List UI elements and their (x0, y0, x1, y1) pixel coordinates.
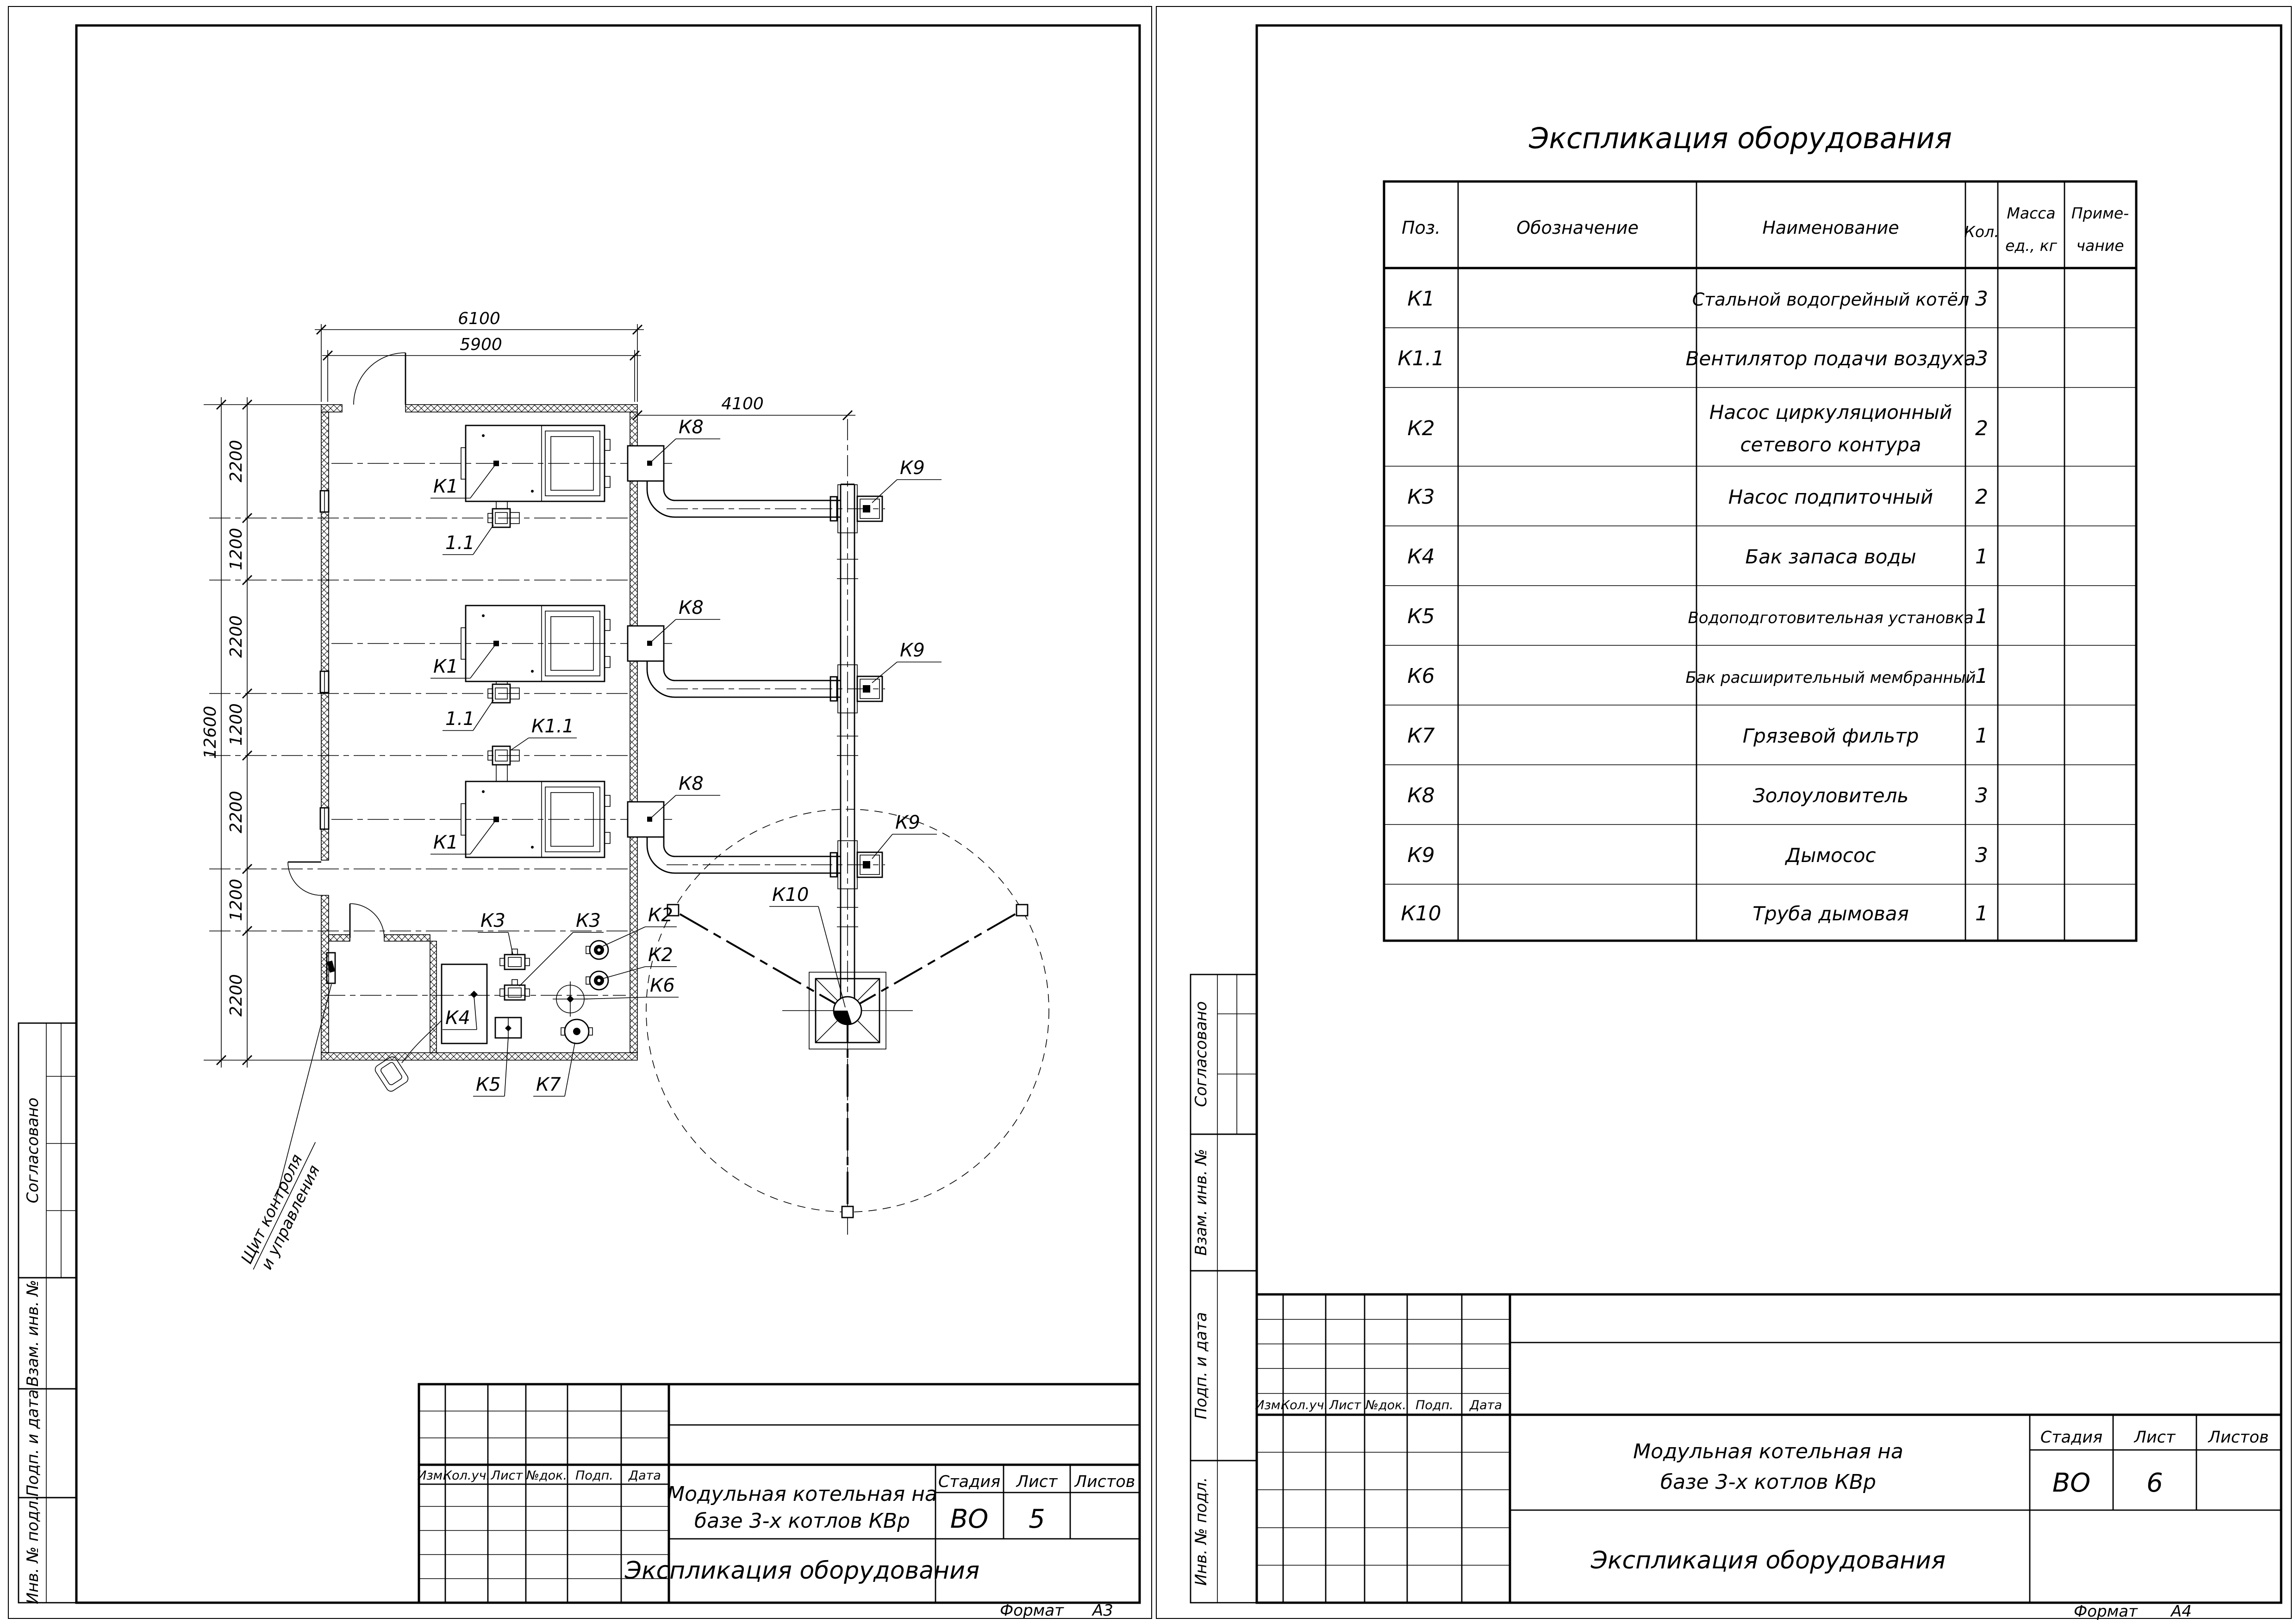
format-value: А4 (2170, 1602, 2192, 1621)
stamp-inv: Инв. № подл. (24, 1496, 42, 1605)
doc-name: Экспликация оборудования (1590, 1547, 1946, 1574)
tbl-rev-koluch: Кол.уч. (443, 1468, 490, 1483)
format-note-right: Формат А4 (2074, 1602, 2192, 1621)
format-value: А3 (1091, 1601, 1113, 1620)
format-note-left: Формат А3 (1000, 1601, 1113, 1620)
cell-name: Бак расширительный мембранный (1686, 668, 1976, 687)
cell-name2: сетевого контура (1740, 433, 1921, 456)
cell-qty: 1 (1975, 545, 1988, 568)
sheets-header: Листов (2208, 1428, 2269, 1447)
label-k8-1: К8 (679, 417, 704, 438)
cell-qty: 1 (1975, 605, 1988, 628)
label-fan-2: 1.1 (445, 708, 475, 730)
table-title: Экспликация оборудования (1528, 121, 1952, 155)
cell-pos: К4 (1407, 545, 1434, 568)
tbl-rev-ndok: №док. (525, 1468, 567, 1483)
stage-header: Стадия (938, 1473, 1000, 1491)
sheet-value: 5 (1029, 1504, 1045, 1534)
drawing-canvas: Согласовано Взам. инв. № Подп. и дата Ин… (0, 0, 2295, 1624)
cell-pos: К8 (1407, 784, 1434, 807)
tbl-rev-podp: Подп. (1416, 1398, 1453, 1412)
cell-name: Дымосос (1784, 844, 1876, 867)
col-code: Обозначение (1516, 218, 1639, 238)
cell-name: Водоподготовительная установка (1688, 609, 1973, 627)
dim-6100: 6100 (458, 309, 500, 328)
label-fan-3: К1.1 (531, 716, 574, 737)
dim-12600: 12600 (201, 706, 220, 759)
label-k1-2: К1 (433, 656, 458, 677)
cell-qty: 3 (1975, 347, 1988, 370)
label-k8-2: К8 (679, 597, 704, 618)
stamp-inv: Инв. № подл. (1192, 1477, 1210, 1586)
stage-value: ВО (2052, 1468, 2091, 1498)
label-k3-2: К3 (576, 910, 601, 931)
label-k9-1: К9 (900, 457, 925, 479)
label-k7: К7 (536, 1074, 561, 1095)
cell-name: Труба дымовая (1752, 902, 1909, 925)
label-k4: К4 (445, 1007, 470, 1029)
label-k3-1: К3 (480, 910, 505, 931)
cell-pos: К7 (1407, 724, 1434, 748)
col-qty: Кол. (1964, 223, 1999, 241)
cell-name: Стальной водогрейный котёл (1692, 289, 1969, 310)
dim-5900: 5900 (460, 335, 502, 354)
project-title-1: Модульная котельная на (1633, 1440, 1903, 1463)
tbl-rev-ndok: №док. (1365, 1398, 1406, 1412)
cell-qty: 2 (1975, 417, 1988, 440)
label-k10: К10 (772, 884, 809, 906)
tbl-rev-izm: Изм. (417, 1468, 447, 1483)
cell-qty: 1 (1975, 664, 1988, 688)
tbl-rev-list: Лист (1329, 1398, 1362, 1412)
format-label: Формат (1000, 1601, 1064, 1620)
cell-qty: 2 (1975, 485, 1988, 509)
cell-name: Вентилятор подачи воздуха (1686, 347, 1976, 370)
project-title-2: базе 3-х котлов КВр (694, 1509, 910, 1533)
stamp-podp: Подп. и дата (1192, 1312, 1210, 1419)
cell-name: Бак запаса воды (1745, 545, 1916, 568)
stamp-zam: Взам. инв. № (24, 1280, 42, 1387)
tbl-rev-koluch: Кол.уч. (1281, 1398, 1328, 1412)
label-k9-2: К9 (900, 640, 925, 661)
cell-qty: 1 (1975, 902, 1988, 925)
doc-name: Экспликация оборудования (624, 1557, 979, 1585)
label-fan-1: 1.1 (445, 532, 475, 554)
cell-pos: К6 (1407, 664, 1434, 688)
format-label: Формат (2074, 1602, 2138, 1621)
tbl-rev-izm: Изм. (1255, 1398, 1285, 1412)
label-k2-1: К2 (648, 905, 673, 926)
cell-qty: 3 (1975, 287, 1988, 311)
cell-name: Грязевой фильтр (1743, 725, 1919, 747)
label-k8-3: К8 (679, 773, 704, 794)
stamp-approved: Согласовано (1192, 1001, 1210, 1107)
label-k1-3: К1 (433, 832, 458, 853)
label-k5: К5 (476, 1074, 501, 1095)
stamp-approved: Согласовано (24, 1098, 42, 1203)
col-mass-2: ед., кг (2005, 237, 2058, 255)
cell-name: Золоуловитель (1753, 784, 1909, 807)
stage-value: ВО (950, 1504, 989, 1534)
label-k9-3: К9 (895, 812, 920, 833)
dim-chain-7: 2200 (227, 974, 246, 1017)
dim-chain-3: 2200 (227, 615, 246, 658)
project-title-2: базе 3-х котлов КВр (1660, 1470, 1876, 1494)
tbl-rev-data: Дата (628, 1468, 661, 1483)
sheet-header: Лист (2133, 1428, 2176, 1447)
dim-4100: 4100 (721, 394, 764, 413)
cell-pos: К2 (1407, 417, 1434, 440)
cell-qty: 3 (1975, 784, 1988, 807)
dim-chain-6: 1200 (227, 879, 246, 921)
sheet-right: Согласовано Взам. инв. № Подп. и дата Ин… (1156, 6, 2291, 1621)
cell-pos: К1.1 (1397, 347, 1444, 370)
cell-pos: К1 (1407, 287, 1434, 311)
cell-qty: 1 (1975, 724, 1988, 748)
col-note-1: Приме- (2071, 204, 2129, 222)
dim-chain-1: 2200 (227, 440, 246, 482)
project-title-1: Модульная котельная на (667, 1482, 937, 1506)
cell-pos: К3 (1407, 485, 1434, 509)
label-k1-1: К1 (433, 476, 458, 497)
dim-chain-5: 2200 (227, 791, 246, 833)
cell-pos: К10 (1401, 902, 1441, 925)
label-k2-2: К2 (648, 944, 673, 966)
stamp-podp: Подп. и дата (24, 1389, 42, 1497)
cell-name: Насос циркуляционный (1709, 401, 1952, 424)
col-mass-1: Масса (2007, 204, 2055, 222)
col-name: Наименование (1762, 218, 1899, 238)
label-k6: К6 (650, 975, 675, 996)
sheet-header: Лист (1016, 1473, 1058, 1491)
tbl-rev-list: Лист (491, 1468, 524, 1483)
cell-pos: К5 (1407, 605, 1434, 628)
dim-chain-4: 1200 (227, 703, 246, 746)
cell-name: Насос подпиточный (1728, 486, 1933, 508)
tbl-rev-data: Дата (1469, 1398, 1502, 1412)
col-pos: Поз. (1402, 218, 1441, 238)
tbl-rev-podp: Подп. (575, 1468, 613, 1483)
stamp-zam: Взам. инв. № (1192, 1149, 1210, 1256)
stage-header: Стадия (2040, 1428, 2102, 1447)
sheet-left: Согласовано Взам. инв. № Подп. и дата Ин… (8, 6, 1152, 1620)
sheet-value: 6 (2146, 1468, 2163, 1498)
sheets-header: Листов (1074, 1473, 1135, 1491)
cell-pos: К9 (1407, 843, 1434, 867)
dim-chain-2: 1200 (227, 528, 246, 570)
col-note-2: чание (2076, 237, 2124, 255)
cell-qty: 3 (1975, 843, 1988, 867)
